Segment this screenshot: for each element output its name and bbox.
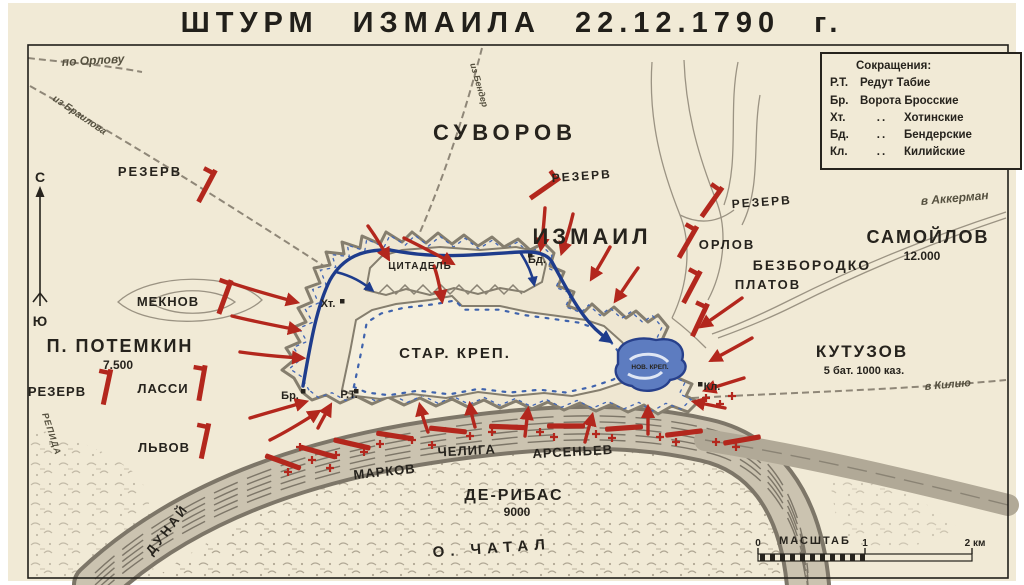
label-old-fort: СТАР. КРЕП.	[399, 345, 511, 362]
legend-ditto: ..	[860, 144, 904, 161]
legend-abbr: Р.Т.	[830, 75, 860, 92]
legend-ditto: ..	[860, 127, 904, 144]
legend-term: Ворота Бросские	[860, 93, 959, 110]
legend-term: Редут Табие	[860, 75, 930, 92]
legend-abbr: Хт.	[830, 110, 860, 127]
compass: С Ю	[33, 169, 47, 329]
label-izmail: ИЗМАИЛ	[532, 224, 651, 249]
label-potemkin: П. ПОТЕМКИН	[47, 336, 194, 356]
legend-heading: Сокращения:	[856, 58, 1016, 75]
scale-label: МАСШТАБ	[779, 535, 851, 547]
label-road-orlov: по Орлову	[61, 52, 126, 69]
legend-row: Р.Т.Редут Табие	[830, 75, 1016, 92]
map-title: ШТУРМ ИЗМАИЛА 22.12.1790 г.	[0, 7, 1024, 40]
label-meknov: МЕКНОВ	[137, 294, 199, 309]
label-reserve-left: РЕЗЕРВ	[118, 164, 182, 179]
label-cheliga: ЧЕЛИГА	[437, 441, 496, 459]
label-road-brailov: из Браилова	[50, 93, 108, 137]
legend-abbr: Бр.	[830, 93, 860, 110]
label-samoilov: САМОЙЛОВ	[866, 226, 989, 247]
label-lassi: ЛАССИ	[137, 381, 188, 396]
label-citadel: ЦИТАДЕЛЬ	[388, 261, 452, 272]
label-samoilov-strength: 12.000	[904, 249, 941, 263]
legend-row: Хт...Хотинские	[830, 110, 1016, 127]
label-gate-bender: Бд.	[528, 254, 546, 266]
label-kutuzov: КУТУЗОВ	[816, 342, 908, 361]
label-reserve-right: РЕЗЕРВ	[731, 193, 792, 211]
scale-tick-2: 2 км	[965, 538, 986, 549]
label-reserve-southwest: РЕЗЕРВ	[28, 384, 86, 399]
label-platov: ПЛАТОВ	[735, 277, 801, 292]
label-gate-kiliya: Кл.	[704, 381, 721, 393]
scale-tick-1: 1	[862, 538, 868, 549]
legend-term: Хотинские	[904, 110, 964, 127]
label-deribas: ДЕ-РИБАС	[464, 487, 563, 504]
label-redoubt-tabie: Р.Т.	[340, 389, 357, 401]
map-page: С Ю МАСШТАБ 0 1 2 км по Орлову из Браило…	[0, 0, 1024, 585]
label-gate-khotin: Хт.	[321, 298, 336, 310]
label-lvov: ЛЬВОВ	[138, 440, 190, 455]
compass-north-arrowhead	[36, 186, 45, 197]
label-suvorov: СУВОРОВ	[433, 120, 577, 145]
label-new-fort: НОВ. КРЕП.	[631, 364, 668, 371]
fortress-izmail	[282, 232, 703, 414]
legend-term: Бендерские	[904, 127, 972, 144]
legend-row: Кл...Килийские	[830, 144, 1016, 161]
label-reserve-center: РЕЗЕРВ	[551, 167, 612, 185]
legend-term: Килийские	[904, 144, 965, 161]
compass-south-label: Ю	[33, 313, 47, 329]
compass-north-label: С	[35, 169, 45, 185]
legend-row: Бд...Бендерские	[830, 127, 1016, 144]
legend-abbr: Бд.	[830, 127, 860, 144]
label-potemkin-strength: 7.500	[103, 358, 133, 372]
legend-box: Сокращения: Р.Т.Редут Табие Бр.Ворота Бр…	[820, 52, 1022, 170]
label-road-kiliya: в Килию	[924, 377, 972, 393]
label-road-akkerman: в Аккерман	[920, 188, 990, 208]
scale-tick-0: 0	[755, 538, 761, 549]
legend-ditto: ..	[860, 110, 904, 127]
legend-abbr: Кл.	[830, 144, 860, 161]
label-deribas-strength: 9000	[504, 505, 531, 519]
label-bezborodko: БЕЗБОРОДКО	[753, 257, 871, 273]
road-from-bender	[412, 48, 482, 250]
label-kutuzov-strength: 5 бат. 1000 каз.	[824, 365, 904, 377]
label-orlov: ОРЛОВ	[699, 237, 756, 252]
label-gate-brossky: Бр.	[281, 390, 299, 402]
legend-row: Бр.Ворота Бросские	[830, 93, 1016, 110]
